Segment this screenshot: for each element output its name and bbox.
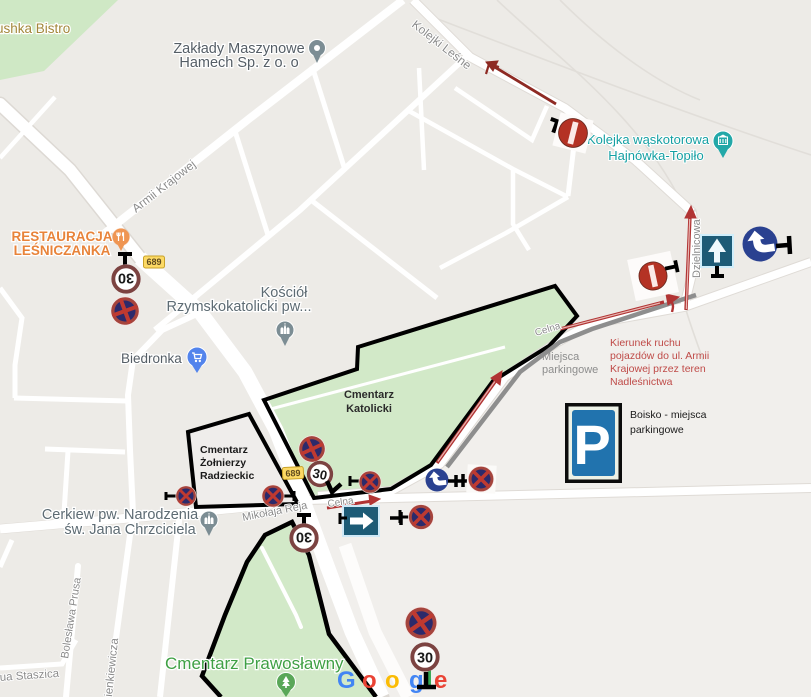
svg-text:689: 689: [146, 257, 161, 267]
svg-text:Radzieckic: Radzieckic: [200, 470, 254, 482]
svg-text:G: G: [337, 667, 356, 694]
svg-text:e: e: [434, 667, 447, 694]
svg-text:Kierunek ruchu: Kierunek ruchu: [610, 337, 681, 349]
svg-text:Cmentarz: Cmentarz: [344, 389, 395, 401]
svg-text:RESTAURACJA: RESTAURACJA: [11, 229, 112, 244]
svg-text:Cmentarz: Cmentarz: [200, 444, 248, 456]
svg-text:Rzymskokatolicki pw...: Rzymskokatolicki pw...: [166, 299, 311, 315]
svg-text:św. Jana Chrzciciela: św. Jana Chrzciciela: [64, 522, 196, 538]
svg-text:Boisko - miejsca: Boisko - miejsca: [630, 409, 707, 421]
svg-text:Katolicki: Katolicki: [346, 403, 392, 415]
svg-text:689: 689: [285, 468, 301, 479]
svg-text:Hamech Sp. z o. o: Hamech Sp. z o. o: [179, 55, 298, 71]
svg-text:Żołnierzy: Żołnierzy: [200, 456, 246, 469]
svg-text:Cerkiew pw. Narodzenia: Cerkiew pw. Narodzenia: [42, 507, 199, 523]
svg-text:parkingowe: parkingowe: [542, 364, 598, 376]
svg-text:Krajowej przez teren: Krajowej przez teren: [610, 363, 706, 375]
svg-text:LEŚNICZANKA: LEŚNICZANKA: [14, 243, 111, 258]
svg-text:Nadleśnictwa: Nadleśnictwa: [610, 376, 673, 388]
svg-text:Hajnówka-Topiło: Hajnówka-Topiło: [608, 148, 703, 163]
svg-text:Kolejka wąskotorowa: Kolejka wąskotorowa: [587, 132, 710, 147]
svg-text:ushka Bistro: ushka Bistro: [0, 21, 70, 36]
svg-text:Miejsca: Miejsca: [542, 351, 580, 363]
svg-text:o: o: [385, 667, 400, 694]
svg-text:o: o: [362, 667, 377, 694]
svg-text:Cmentarz Prawosławny: Cmentarz Prawosławny: [165, 654, 344, 673]
svg-text:P: P: [573, 413, 610, 476]
svg-text:parkingowe: parkingowe: [630, 424, 684, 436]
svg-text:Biedronka: Biedronka: [121, 351, 182, 366]
svg-text:pojazdów do ul. Armii: pojazdów do ul. Armii: [610, 350, 709, 362]
